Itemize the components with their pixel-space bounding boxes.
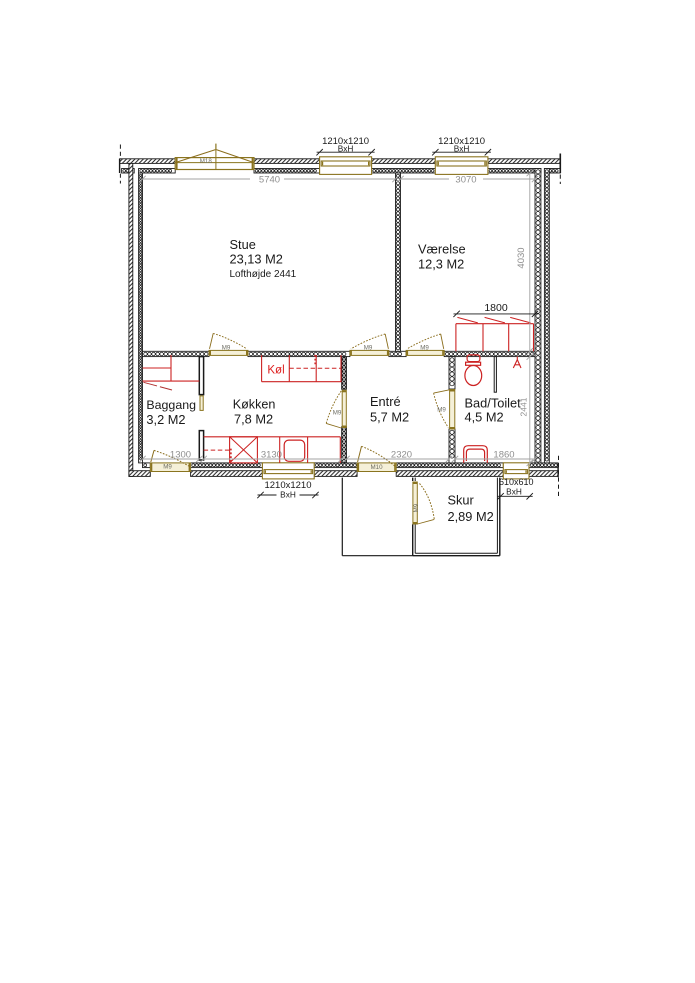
svg-text:23,13 M2: 23,13 M2 xyxy=(230,252,283,267)
svg-text:3070: 3070 xyxy=(455,174,476,185)
svg-text:5,7 M2: 5,7 M2 xyxy=(370,410,409,425)
svg-text:M9: M9 xyxy=(413,503,420,512)
svg-text:4,5 M2: 4,5 M2 xyxy=(465,410,504,425)
svg-text:Skur: Skur xyxy=(448,493,475,508)
svg-text:Køkken: Køkken xyxy=(233,398,276,412)
svg-text:Køl: Køl xyxy=(267,365,284,377)
svg-text:Værelse: Værelse xyxy=(418,242,466,257)
svg-text:1300: 1300 xyxy=(170,450,191,461)
svg-text:5740: 5740 xyxy=(259,174,280,185)
svg-text:M18: M18 xyxy=(200,158,213,165)
svg-text:7,8 M2: 7,8 M2 xyxy=(234,412,273,427)
svg-text:2441: 2441 xyxy=(519,397,529,416)
svg-text:BxH: BxH xyxy=(280,490,296,500)
svg-text:2,89 M2: 2,89 M2 xyxy=(448,509,494,524)
svg-text:Entré: Entré xyxy=(370,394,401,409)
svg-text:Stue: Stue xyxy=(230,237,256,252)
svg-text:M9: M9 xyxy=(333,410,342,417)
svg-text:12,3 M2: 12,3 M2 xyxy=(418,257,464,272)
svg-text:Bad/Toilet: Bad/Toilet xyxy=(465,396,522,411)
svg-text:M9: M9 xyxy=(222,345,231,352)
svg-text:2320: 2320 xyxy=(391,450,412,461)
svg-text:M9: M9 xyxy=(420,345,429,352)
svg-text:3130: 3130 xyxy=(261,450,282,461)
svg-text:1860: 1860 xyxy=(493,450,514,461)
svg-text:M9: M9 xyxy=(163,464,172,471)
svg-text:M9: M9 xyxy=(364,345,373,352)
svg-text:Baggang: Baggang xyxy=(146,398,196,412)
svg-text:1800: 1800 xyxy=(484,302,508,314)
svg-text:3,2 M2: 3,2 M2 xyxy=(146,412,185,427)
svg-text:M10: M10 xyxy=(370,464,383,471)
svg-text:BxH: BxH xyxy=(506,486,522,496)
svg-text:Lofthøjde 2441: Lofthøjde 2441 xyxy=(230,269,297,280)
svg-text:M9: M9 xyxy=(437,407,446,414)
svg-text:4030: 4030 xyxy=(516,247,527,268)
